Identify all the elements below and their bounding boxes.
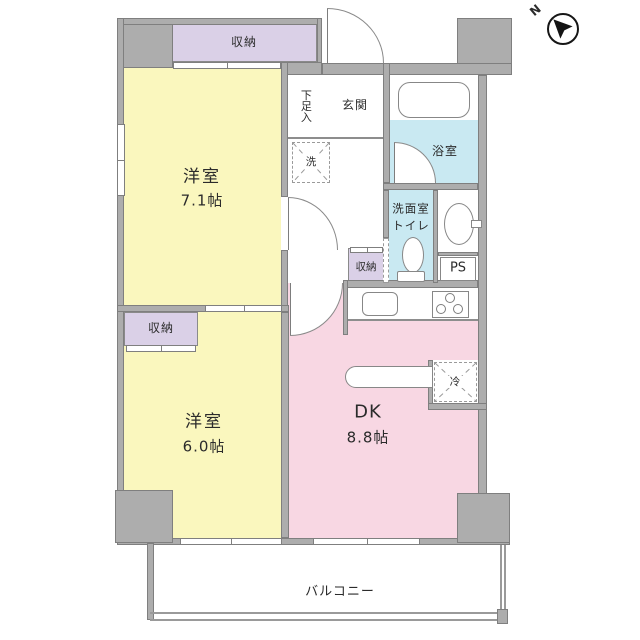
label-fridge: 冷 [448, 376, 463, 388]
window [117, 124, 125, 196]
label-shoe-cabinet: 下足入 [299, 90, 312, 123]
label-entrance: 玄関 [342, 99, 368, 113]
label-balcony: バルコニー [305, 586, 375, 601]
door-swing-entrance [327, 8, 384, 63]
kitchen-sink [362, 292, 398, 316]
basin-faucet [471, 220, 482, 228]
label-storage-hall: 収納 [356, 261, 377, 273]
entrance-step-line [288, 137, 383, 139]
wall [115, 490, 173, 543]
kitchen-counter [345, 366, 433, 388]
wall [457, 493, 510, 543]
compass-icon [547, 13, 579, 45]
label-bathroom: 浴室 [432, 145, 458, 159]
wall [383, 63, 390, 183]
wall [117, 18, 322, 25]
sliding-door-storage-hall [350, 247, 383, 253]
compass-north-label: N [528, 2, 545, 19]
balcony-side-wall [147, 543, 154, 620]
wall [117, 18, 173, 68]
compass-needle-icon [549, 15, 577, 43]
sliding-door-storage-top [173, 62, 281, 69]
sliding-door-storage-mid [126, 345, 196, 352]
wall [428, 403, 487, 410]
label-western1-size: 7.1帖 [181, 192, 224, 209]
wall [383, 190, 389, 238]
folding-door-washroom [383, 238, 389, 283]
wall [433, 190, 438, 283]
balcony-rail [150, 612, 502, 614]
wall [281, 62, 288, 197]
label-storage-top: 収納 [231, 36, 257, 50]
burner-icon [453, 304, 463, 314]
balcony-divider [500, 545, 502, 611]
balcony-rail [150, 619, 502, 621]
label-dk-size: 8.8帖 [347, 429, 390, 446]
label-washer: 洗 [304, 156, 319, 168]
label-western2-name: 洋室 [185, 413, 223, 433]
wall [478, 75, 487, 545]
wall [281, 250, 288, 312]
balcony-divider [504, 545, 506, 611]
balcony-divider-cap [497, 609, 508, 624]
wall [322, 63, 512, 75]
burner-icon [436, 304, 446, 314]
burner-icon [445, 293, 455, 303]
wall [117, 18, 124, 545]
bathtub [398, 82, 470, 118]
label-western2-size: 6.0帖 [183, 438, 226, 455]
wall [343, 280, 348, 335]
floor-plan: N 収納 洋室 7.1帖 下足入 玄関 洗 浴室 洗面室 トイレ PS 収納 収… [0, 0, 640, 640]
label-pipe-space: PS [450, 262, 466, 277]
label-washroom-1: 洗面室 [392, 202, 430, 215]
toilet-bowl [402, 237, 424, 273]
wall [438, 252, 478, 256]
stove [432, 291, 469, 318]
label-dk-name: DK [354, 403, 382, 424]
wall [383, 183, 478, 190]
sliding-door-balcony [313, 538, 420, 545]
wash-basin [444, 203, 474, 245]
door-swing-western1 [288, 197, 338, 250]
label-western1-name: 洋室 [183, 168, 221, 188]
wall [281, 312, 289, 538]
kitchen-counter-edge [347, 319, 478, 321]
sliding-door-balcony [180, 538, 282, 545]
sliding-door-rooms [205, 305, 282, 312]
label-washroom-2: トイレ [392, 219, 430, 232]
toilet-tank [397, 271, 425, 282]
label-storage-mid: 収納 [148, 322, 174, 336]
